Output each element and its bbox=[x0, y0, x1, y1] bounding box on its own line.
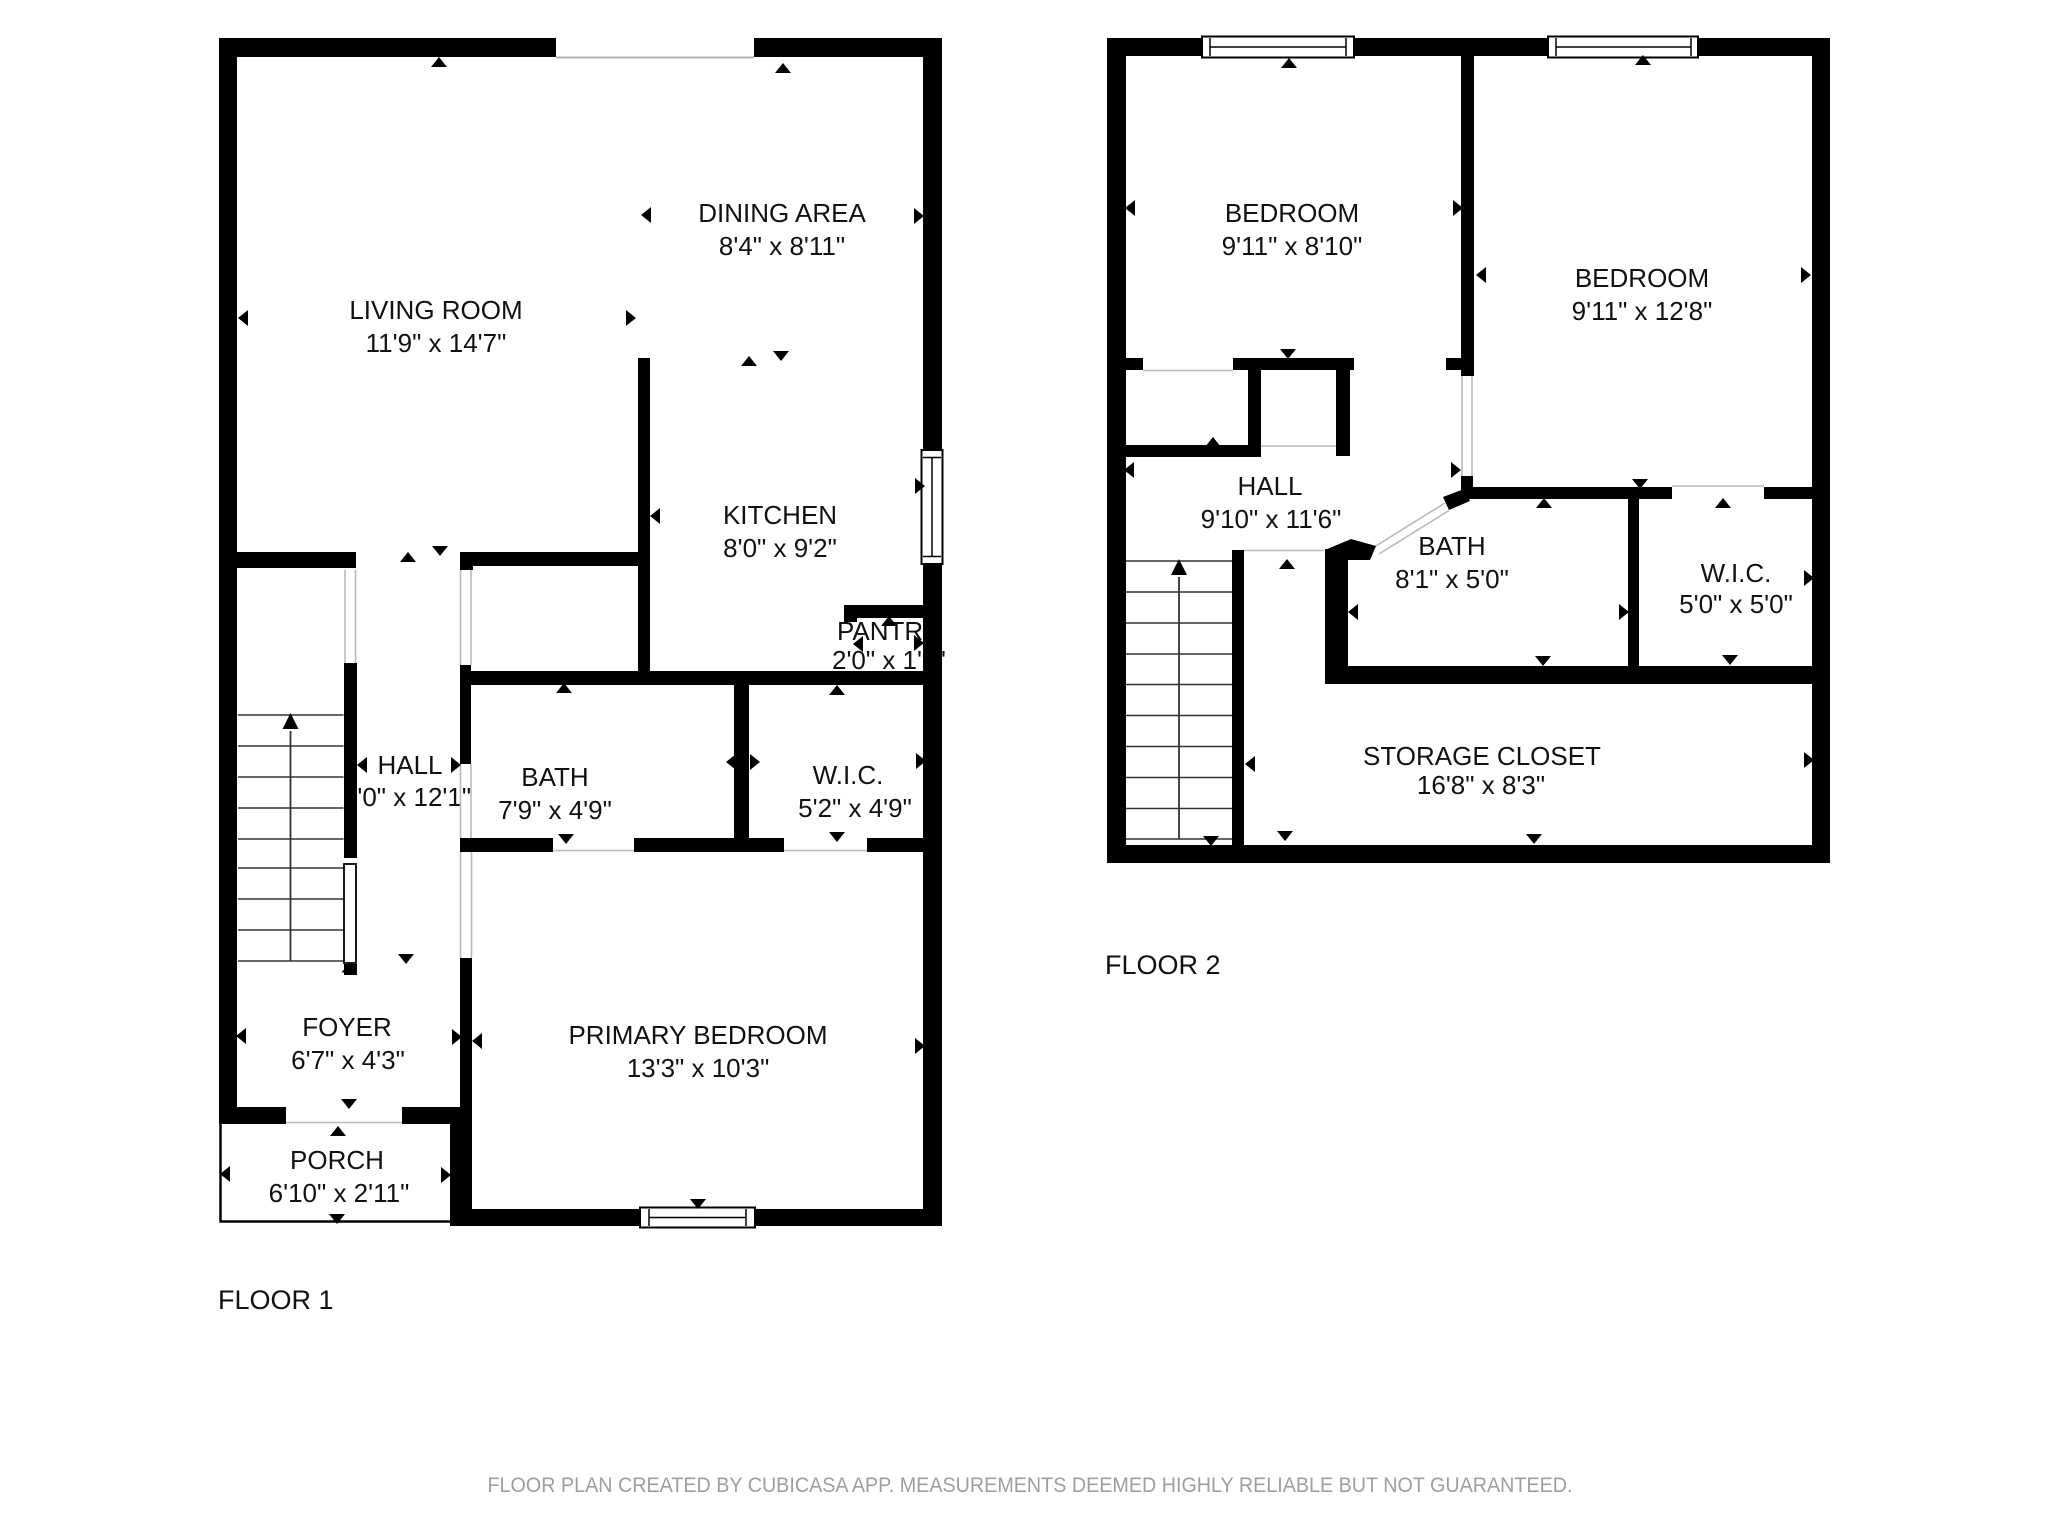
svg-text:5'0" x 5'0": 5'0" x 5'0" bbox=[1679, 589, 1793, 619]
svg-text:3'0" x 12'1": 3'0" x 12'1" bbox=[343, 782, 471, 812]
svg-text:W.I.C.: W.I.C. bbox=[1701, 558, 1772, 588]
svg-text:BATH: BATH bbox=[521, 762, 588, 792]
svg-text:6'7" x 4'3": 6'7" x 4'3" bbox=[291, 1045, 405, 1075]
svg-text:HALL: HALL bbox=[377, 750, 442, 780]
svg-text:BATH: BATH bbox=[1418, 531, 1485, 561]
svg-text:HALL: HALL bbox=[1237, 471, 1302, 501]
svg-text:16'8" x 8'3": 16'8" x 8'3" bbox=[1417, 770, 1545, 800]
svg-text:PRIMARY BEDROOM: PRIMARY BEDROOM bbox=[568, 1020, 827, 1050]
svg-text:FOYER: FOYER bbox=[302, 1012, 392, 1042]
svg-text:BEDROOM: BEDROOM bbox=[1225, 198, 1359, 228]
svg-text:6'10" x 2'11": 6'10" x 2'11" bbox=[269, 1178, 410, 1208]
svg-text:9'11" x 8'10": 9'11" x 8'10" bbox=[1222, 231, 1363, 261]
svg-text:DINING AREA: DINING AREA bbox=[698, 198, 866, 228]
svg-text:9'10" x 11'6": 9'10" x 11'6" bbox=[1201, 504, 1342, 534]
svg-text:KITCHEN: KITCHEN bbox=[723, 500, 837, 530]
svg-text:FLOOR 1: FLOOR 1 bbox=[218, 1285, 334, 1315]
svg-text:7'9" x 4'9": 7'9" x 4'9" bbox=[498, 795, 612, 825]
svg-text:FLOOR 2: FLOOR 2 bbox=[1105, 950, 1221, 980]
svg-text:8'1" x 5'0": 8'1" x 5'0" bbox=[1395, 564, 1509, 594]
svg-text:11'9" x 14'7": 11'9" x 14'7" bbox=[366, 328, 507, 358]
svg-text:STORAGE CLOSET: STORAGE CLOSET bbox=[1363, 741, 1601, 771]
svg-text:W.I.C.: W.I.C. bbox=[813, 760, 884, 790]
svg-text:13'3" x 10'3": 13'3" x 10'3" bbox=[627, 1053, 770, 1083]
svg-text:5'2" x 4'9": 5'2" x 4'9" bbox=[798, 793, 912, 823]
svg-text:PORCH: PORCH bbox=[290, 1145, 384, 1175]
svg-text:BEDROOM: BEDROOM bbox=[1575, 263, 1709, 293]
svg-text:FLOOR PLAN CREATED BY CUBICASA: FLOOR PLAN CREATED BY CUBICASA APP. MEAS… bbox=[488, 1474, 1573, 1497]
svg-text:8'0" x 9'2": 8'0" x 9'2" bbox=[723, 533, 837, 563]
svg-text:LIVING ROOM: LIVING ROOM bbox=[349, 295, 522, 325]
svg-text:9'11" x 12'8": 9'11" x 12'8" bbox=[1572, 296, 1713, 326]
svg-text:8'4" x 8'11": 8'4" x 8'11" bbox=[719, 231, 845, 261]
